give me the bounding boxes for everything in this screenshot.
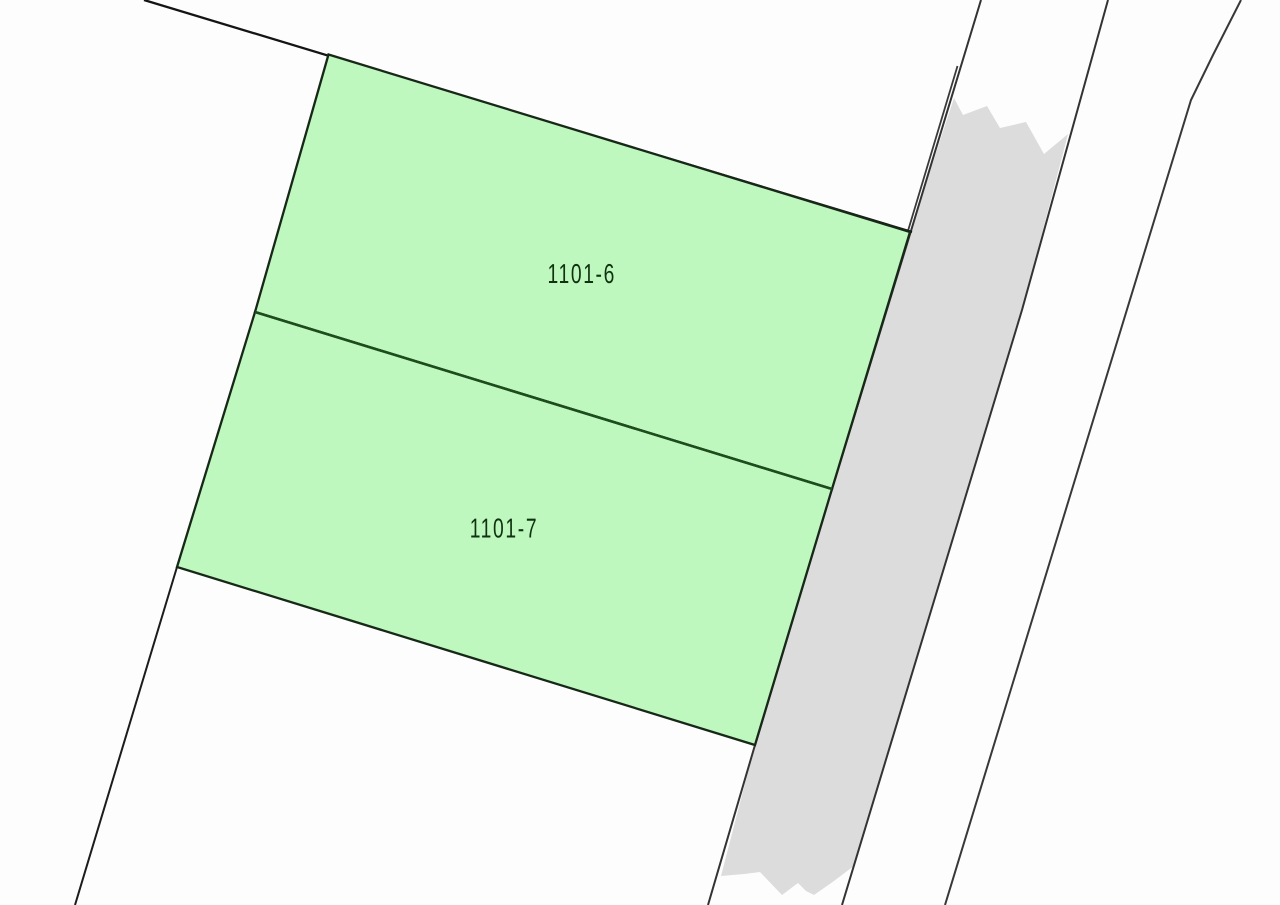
svg-text:1101-7: 1101-7 bbox=[470, 515, 539, 545]
svg-text:1101-6: 1101-6 bbox=[548, 260, 617, 290]
